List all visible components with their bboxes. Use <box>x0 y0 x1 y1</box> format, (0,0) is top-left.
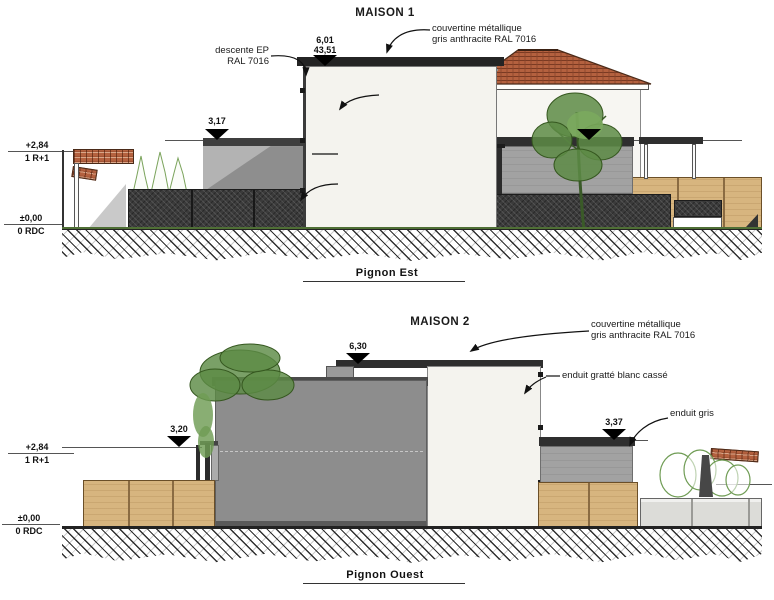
maison2-panel: MAISON 2 couvertine métallique gris anth… <box>0 300 774 600</box>
left-grey-wall <box>203 138 312 192</box>
level-upper-name: 1 R+1 <box>6 153 68 163</box>
pergola-post <box>692 144 696 179</box>
downspout-clamp <box>300 88 305 93</box>
leader-couvertine <box>387 30 430 52</box>
dim-wall-left: 3,17 <box>195 116 239 126</box>
elevation-drawing: MAISON 1 couvertine métallique gris anth… <box>0 0 774 600</box>
dim-marker <box>167 436 191 447</box>
right-fence <box>479 194 671 231</box>
concrete-joint <box>691 499 693 527</box>
wood-joint <box>128 481 130 527</box>
dim-wall-right: 3,37 <box>592 417 636 427</box>
dim-wall-left: 3,20 <box>157 424 201 434</box>
section-caption: Pignon Ouest <box>285 569 485 581</box>
concrete-joint <box>748 499 750 527</box>
dim-roof: 6,30 <box>336 341 380 351</box>
annotation-couvertine: couvertine métallique gris anthracite RA… <box>591 319 695 341</box>
level-ground-line <box>4 224 62 225</box>
gate-column <box>211 445 219 481</box>
ground-hatch <box>62 229 762 262</box>
tiled-roof <box>471 50 651 84</box>
shrub-sketch <box>133 152 187 193</box>
wall-dashed-joint <box>220 451 423 452</box>
white-house-wall <box>427 366 541 528</box>
right-grey-wall <box>495 146 633 194</box>
wood-joint <box>588 483 590 527</box>
level-upper-line <box>8 453 74 454</box>
gate-post <box>205 443 210 481</box>
leader-couvertine <box>471 331 589 351</box>
level-ground-name: 0 RDC <box>0 526 58 536</box>
wood-joint <box>172 481 174 527</box>
level-ground-value: ±0,00 <box>0 513 58 523</box>
white-house-wall <box>303 66 497 232</box>
caption-underline <box>303 583 465 584</box>
right-wall-coping <box>493 137 634 146</box>
house-roof-band <box>297 57 504 66</box>
carport-tile-cap <box>73 149 134 164</box>
section-caption: Pignon Est <box>287 267 487 279</box>
level-upper-value: +2,84 <box>6 442 68 452</box>
annotation-descente: descente EP RAL 7016 <box>203 45 269 67</box>
wood-fence-left <box>83 480 215 528</box>
level-ground-line <box>2 524 60 525</box>
level-ground-name: 0 RDC <box>2 226 60 236</box>
right-grey-wall <box>540 446 633 483</box>
access-ramp <box>88 184 126 229</box>
ground-line <box>62 227 762 229</box>
maison1-panel: MAISON 1 couvertine métallique gris anth… <box>0 0 774 300</box>
fence-post <box>497 148 502 194</box>
section-title: MAISON 1 <box>310 8 460 19</box>
pergola-post <box>644 144 648 179</box>
left-fence <box>128 189 310 231</box>
section-title: MAISON 2 <box>365 317 515 328</box>
annotation-couvertine: couvertine métallique gris anthracite RA… <box>432 23 536 45</box>
boundary-line <box>62 150 64 229</box>
dim-roof: 6,01 43,51 <box>301 35 349 55</box>
annotation-enduit-blanc: enduit gratté blanc cassé <box>562 370 668 381</box>
right-wall-coping <box>539 437 635 446</box>
grey-house-wall <box>215 380 427 528</box>
level-upper-line <box>8 151 74 152</box>
dim-line-left <box>62 447 202 448</box>
right-level-line <box>716 484 772 485</box>
ground-hatch <box>62 528 762 564</box>
carport-post <box>74 163 79 229</box>
low-fence-panel <box>674 200 722 217</box>
downspout-clamp <box>300 138 305 143</box>
downspout-clamp <box>538 372 543 377</box>
annotation-enduit-gris: enduit gris <box>670 408 714 419</box>
downspout-clamp <box>538 425 543 430</box>
wood-fence-right <box>538 482 638 528</box>
concrete-top-band <box>641 499 761 502</box>
level-ground-value: ±0,00 <box>2 213 60 223</box>
dark-trunk <box>699 455 713 497</box>
pergola-beam <box>639 137 703 144</box>
fence-post <box>191 190 193 230</box>
wall-coping <box>203 138 312 146</box>
level-upper-value: +2,84 <box>6 140 68 150</box>
caption-underline <box>303 281 465 282</box>
ground-line <box>62 526 762 528</box>
low-concrete-wall <box>640 498 762 528</box>
gate-post <box>196 445 200 481</box>
wall-shade <box>203 138 312 192</box>
roof-fascia <box>473 83 649 90</box>
downspout-clamp <box>300 188 305 193</box>
fence-post <box>253 190 255 230</box>
wood-joint <box>723 178 725 228</box>
level-upper-name: 1 R+1 <box>6 455 68 465</box>
tile-cap-right <box>710 448 759 462</box>
